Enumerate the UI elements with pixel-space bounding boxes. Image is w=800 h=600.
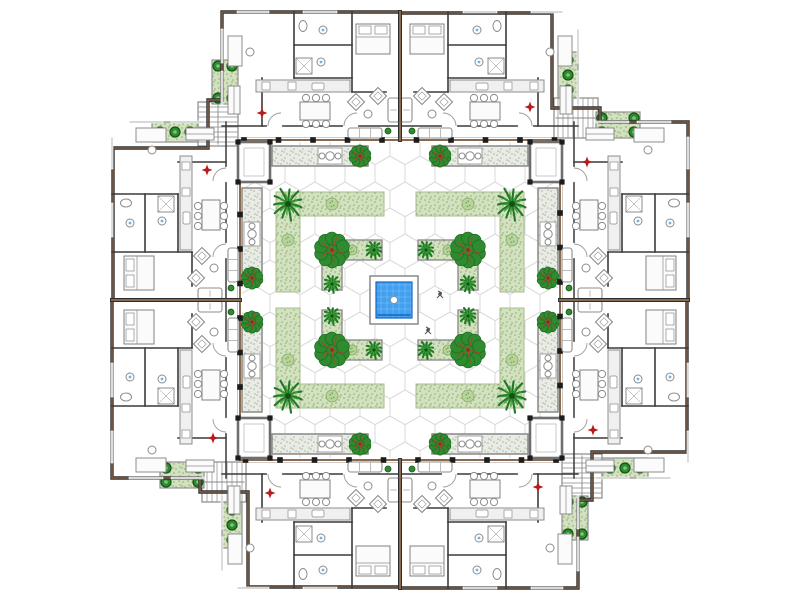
toilet	[299, 569, 307, 580]
stove	[182, 404, 190, 412]
terrace-sofa	[562, 248, 572, 282]
red-cross-marker	[208, 433, 219, 444]
stove	[182, 188, 190, 196]
dining-chair	[470, 94, 477, 101]
door-arc	[519, 474, 532, 487]
cafe-chair	[545, 223, 551, 229]
walkway-column	[237, 212, 243, 218]
planter-end-tree	[349, 145, 371, 167]
dining-chair	[322, 498, 329, 505]
plant-pot	[228, 285, 234, 291]
dining-chair	[490, 120, 497, 127]
courtyard	[241, 142, 559, 458]
dining-chair	[598, 390, 605, 397]
stove	[530, 82, 538, 90]
walkway-column	[484, 457, 490, 463]
stove	[530, 510, 538, 518]
walkway-column	[237, 384, 243, 390]
dining-chair	[322, 120, 329, 127]
shrub	[462, 390, 474, 402]
pool-fountain	[391, 297, 398, 304]
stove	[504, 510, 512, 518]
toilet	[299, 21, 307, 32]
door-arc	[268, 113, 281, 126]
walkway-column	[312, 457, 318, 463]
door-arc	[574, 343, 587, 356]
dining-chair	[572, 202, 579, 209]
corner-pavilion	[527, 139, 564, 184]
shrub	[506, 234, 518, 246]
kitchen-sink	[476, 83, 488, 90]
shrub	[282, 234, 294, 246]
dining-chair	[312, 498, 319, 505]
dining-chair	[572, 222, 579, 229]
side-table	[582, 264, 590, 272]
armchair	[188, 314, 205, 331]
cafe-chair	[459, 441, 465, 447]
dining-chair	[490, 94, 497, 101]
toilet	[121, 393, 132, 401]
door-arc	[443, 113, 456, 126]
dining-chair	[312, 120, 319, 127]
toilet	[669, 393, 680, 401]
corner-pavilion	[235, 415, 272, 460]
planter-end-tree	[241, 267, 263, 289]
courtyard-tree	[315, 232, 350, 268]
dining-chair	[302, 94, 309, 101]
cafe-chair	[459, 153, 465, 159]
door-arc	[213, 343, 226, 356]
stove	[262, 510, 270, 518]
desk-chair	[246, 544, 254, 552]
shrub	[506, 354, 518, 366]
walkway-column	[276, 137, 282, 143]
armchair	[348, 490, 365, 507]
walkway-column	[277, 457, 283, 463]
desk-chair	[246, 48, 254, 56]
cafe-table	[466, 440, 474, 448]
door-arc	[519, 113, 532, 126]
plant-pot	[409, 128, 415, 134]
cafe-chair	[249, 355, 255, 361]
dining-chair	[220, 390, 227, 397]
door-arc	[213, 168, 226, 181]
dining-chair	[480, 94, 487, 101]
kitchen-sink	[476, 510, 488, 517]
dining-table	[470, 102, 500, 120]
shrub	[282, 354, 294, 366]
dining-chair	[302, 472, 309, 479]
door-arc	[443, 474, 456, 487]
dining-table	[580, 370, 598, 400]
kitchen-sink	[183, 376, 190, 388]
dining-table	[580, 200, 598, 230]
walkway-column	[381, 457, 387, 463]
armchair	[188, 270, 205, 287]
stove	[182, 162, 190, 170]
bush	[563, 70, 573, 80]
dining-chair	[302, 498, 309, 505]
toilet	[493, 21, 501, 32]
dining-table	[202, 200, 220, 230]
dining-chair	[470, 120, 477, 127]
side-table	[428, 110, 436, 118]
stove	[182, 430, 190, 438]
dining-chair	[312, 94, 319, 101]
walkway-column	[557, 210, 563, 216]
plant-pot	[566, 309, 572, 315]
cafe-table	[544, 230, 552, 238]
planter-end-tree	[349, 433, 371, 455]
walkway-column	[237, 281, 243, 287]
walkway-column	[557, 383, 563, 389]
desk-chair	[546, 544, 554, 552]
walkway-column	[483, 137, 489, 143]
armchair	[370, 88, 387, 105]
dining-chair	[572, 370, 579, 377]
cafe-chair	[335, 441, 341, 447]
dining-chair	[598, 380, 605, 387]
terrace-sofa	[348, 128, 382, 138]
dining-chair	[194, 222, 201, 229]
door-arc	[213, 419, 226, 432]
plant-pot	[385, 128, 391, 134]
toilet	[121, 199, 132, 207]
dining-chair	[302, 120, 309, 127]
desk	[228, 36, 242, 66]
kitchen-sink	[312, 83, 324, 90]
armchair	[590, 248, 607, 265]
dining-chair	[220, 222, 227, 229]
terrace-sofa	[348, 462, 382, 472]
terrace-sofa	[562, 318, 572, 352]
desk-chair	[644, 446, 652, 454]
door-arc	[344, 474, 357, 487]
dining-chair	[598, 212, 605, 219]
cafe-chair	[475, 441, 481, 447]
cafe-chair	[249, 371, 255, 377]
kitchen-sink	[312, 510, 324, 517]
cafe-chair	[545, 355, 551, 361]
shrub	[326, 390, 338, 402]
dining-chair	[490, 472, 497, 479]
armchair	[194, 248, 211, 265]
side-table	[582, 328, 590, 336]
planter-end-tree	[429, 145, 451, 167]
desk-chair	[148, 146, 156, 154]
armchair	[348, 94, 365, 111]
bush	[227, 520, 237, 530]
walkway-column	[517, 137, 523, 143]
stove	[610, 430, 618, 438]
stove	[504, 82, 512, 90]
armchair	[436, 94, 453, 111]
kitchen-sink	[610, 376, 617, 388]
apartment-wing	[222, 457, 578, 588]
plant-pot	[409, 466, 415, 472]
kitchen-sink	[610, 212, 617, 224]
dining-chair	[572, 380, 579, 387]
shrub	[326, 198, 338, 210]
bush	[170, 127, 180, 137]
armchair	[370, 496, 387, 513]
side-table	[210, 328, 218, 336]
plant-pot	[566, 285, 572, 291]
stove	[610, 162, 618, 170]
dining-chair	[220, 212, 227, 219]
desk-chair	[148, 446, 156, 454]
bush	[620, 463, 630, 473]
courtyard-tree	[451, 332, 486, 368]
dining-chair	[312, 472, 319, 479]
planter-end-tree	[537, 267, 559, 289]
door-arc	[574, 419, 587, 432]
side-table	[364, 110, 372, 118]
walkway-column	[310, 137, 316, 143]
cafe-table	[248, 362, 256, 370]
desk	[136, 128, 166, 142]
cafe-table	[466, 152, 474, 160]
central-pool	[370, 276, 418, 324]
dining-chair	[480, 472, 487, 479]
dining-chair	[194, 370, 201, 377]
stove	[288, 82, 296, 90]
armchair	[596, 314, 613, 331]
armchair	[194, 336, 211, 353]
walkway-column	[557, 314, 563, 320]
red-cross-marker	[582, 157, 593, 168]
cafe-chair	[475, 153, 481, 159]
dining-chair	[572, 390, 579, 397]
dining-chair	[194, 212, 201, 219]
dining-table	[202, 370, 220, 400]
planter-end-tree	[537, 311, 559, 333]
dining-chair	[194, 390, 201, 397]
red-cross-marker	[257, 108, 268, 119]
armchair	[590, 336, 607, 353]
courtyard-tree	[315, 332, 350, 368]
cafe-chair	[545, 371, 551, 377]
cafe-table	[248, 230, 256, 238]
corner-pavilion	[235, 139, 272, 184]
toilet	[669, 199, 680, 207]
desk	[228, 534, 242, 564]
red-cross-marker	[533, 482, 544, 493]
door-arc	[574, 244, 587, 257]
terrace-sofa	[418, 128, 452, 138]
armchair	[596, 270, 613, 287]
desk	[634, 128, 664, 142]
side-table	[428, 482, 436, 490]
apartment-unit	[112, 301, 238, 478]
desk	[136, 458, 166, 472]
armchair	[414, 88, 431, 105]
stove	[610, 404, 618, 412]
desk-chair	[644, 146, 652, 154]
dining-chair	[490, 498, 497, 505]
shrub	[462, 198, 474, 210]
apartment-wing	[222, 12, 578, 143]
dining-chair	[480, 120, 487, 127]
apartment-unit	[222, 12, 399, 138]
terrace-sofa	[228, 248, 238, 282]
dining-chair	[194, 380, 201, 387]
stove	[262, 82, 270, 90]
dining-chair	[220, 370, 227, 377]
planter-end-tree	[241, 311, 263, 333]
dining-chair	[480, 498, 487, 505]
cafe-chair	[545, 239, 551, 245]
desk	[634, 458, 664, 472]
dining-chair	[322, 472, 329, 479]
stove	[610, 188, 618, 196]
cafe-chair	[319, 153, 325, 159]
door-arc	[213, 244, 226, 257]
apartment-wing	[557, 122, 688, 478]
kitchen-sink	[183, 212, 190, 224]
dining-chair	[572, 212, 579, 219]
door-arc	[344, 113, 357, 126]
apartment-wing	[112, 122, 243, 478]
dining-chair	[470, 498, 477, 505]
walkway-column	[414, 137, 420, 143]
dining-chair	[194, 202, 201, 209]
desk	[558, 36, 572, 66]
plant-pot	[228, 309, 234, 315]
cafe-chair	[249, 239, 255, 245]
dining-table	[470, 480, 500, 498]
walkway-column	[519, 457, 525, 463]
red-cross-marker	[202, 165, 213, 176]
cafe-chair	[335, 153, 341, 159]
red-cross-marker	[265, 488, 276, 499]
red-cross-marker	[525, 102, 536, 113]
red-cross-marker	[588, 425, 599, 436]
planter-end-tree	[429, 433, 451, 455]
door-arc	[574, 168, 587, 181]
cafe-chair	[249, 223, 255, 229]
side-table	[210, 264, 218, 272]
dining-chair	[598, 202, 605, 209]
dining-chair	[598, 222, 605, 229]
corner-pavilion	[527, 415, 564, 460]
stove	[288, 510, 296, 518]
side-table	[364, 482, 372, 490]
armchair	[414, 496, 431, 513]
apartment-unit	[401, 462, 578, 588]
apartment-unit	[562, 122, 688, 299]
floor-plan-svg	[0, 0, 800, 600]
plant-pot	[385, 466, 391, 472]
cafe-chair	[319, 441, 325, 447]
toilet	[493, 569, 501, 580]
terrace-sofa	[228, 318, 238, 352]
floor-plan-page	[0, 0, 800, 600]
desk-chair	[546, 48, 554, 56]
cafe-table	[326, 440, 334, 448]
dining-chair	[322, 94, 329, 101]
desk	[558, 534, 572, 564]
dining-chair	[598, 370, 605, 377]
dining-chair	[470, 472, 477, 479]
cafe-table	[326, 152, 334, 160]
terrace-sofa	[418, 462, 452, 472]
dining-chair	[220, 202, 227, 209]
cafe-table	[544, 362, 552, 370]
armchair	[436, 490, 453, 507]
door-arc	[268, 474, 281, 487]
dining-chair	[220, 380, 227, 387]
courtyard-tree	[451, 232, 486, 268]
dining-table	[300, 102, 330, 120]
dining-table	[300, 480, 330, 498]
